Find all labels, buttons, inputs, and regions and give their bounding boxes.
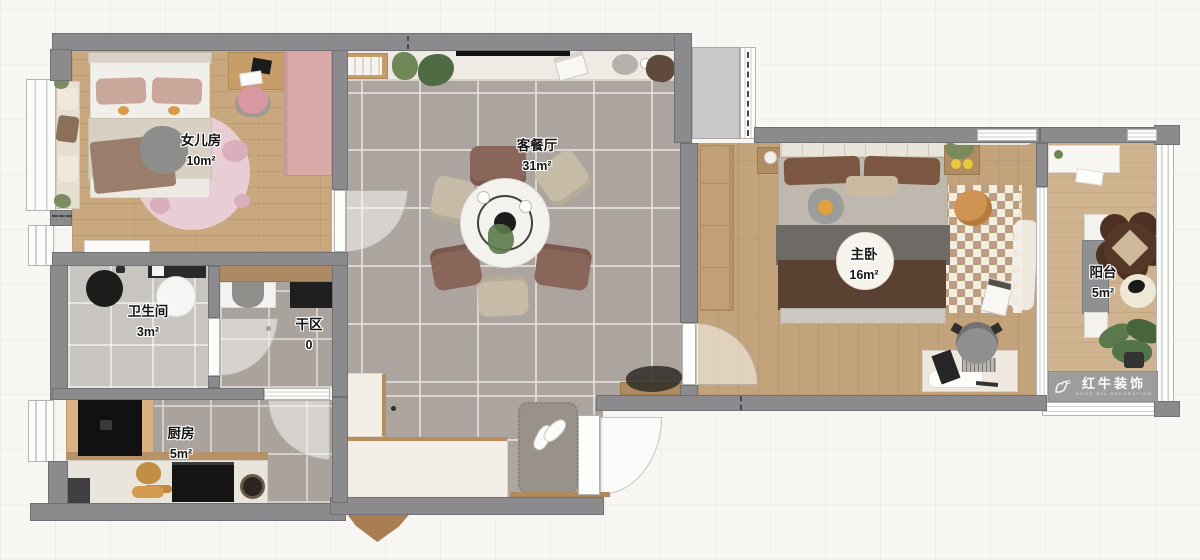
window-balcony-north	[1127, 129, 1157, 141]
master-bed-headboard	[780, 141, 946, 157]
label-daughter-room: 女儿房 10m²	[181, 131, 222, 171]
daughter-bed-pillow-left	[96, 77, 147, 105]
bathroom-area: 3m²	[128, 323, 169, 342]
daughter-rug-spot-3	[234, 194, 250, 208]
entry-cabinet-lower	[332, 437, 508, 500]
wall-south-kitchen	[30, 503, 346, 521]
kitchen-fridge-handle	[100, 420, 112, 430]
wall-corner-northeast	[1154, 125, 1180, 145]
kitchen-stove	[172, 462, 234, 502]
daughter-rug-spot-2	[150, 196, 170, 214]
dry-area-area: 0	[296, 336, 323, 355]
entry-door-arc	[600, 417, 662, 495]
dining-chair-east	[533, 242, 592, 291]
brand-watermark: 红牛装饰 HONG NIU DECORATION	[1048, 371, 1158, 402]
wall-south-foyer	[330, 497, 604, 515]
master-lamp-left	[764, 151, 777, 164]
washing-machine-knob	[116, 266, 125, 273]
master-bedroom-area: 16m²	[849, 266, 878, 285]
dining-cup-2	[519, 200, 532, 213]
master-wardrobe	[700, 145, 734, 311]
daughter-wardrobe	[284, 50, 332, 176]
bathroom-name: 卫生间	[128, 302, 169, 323]
wall-removed-dash-2	[740, 396, 742, 410]
kitchen-area: 5m²	[168, 445, 195, 464]
master-curtain-cloth	[1010, 219, 1039, 310]
vanity-plate	[612, 54, 638, 75]
watermark-subtitle-text: HONG NIU DECORATION	[1076, 391, 1152, 397]
dry-sink-basin	[232, 282, 264, 308]
utility-shaft	[692, 47, 740, 139]
living-dining-area: 31m²	[517, 157, 558, 176]
label-balcony: 阳台 5m²	[1090, 263, 1117, 303]
wall-kitchen-north-left	[52, 388, 264, 400]
wall-bath-north	[52, 252, 348, 266]
master-duck-2	[963, 159, 973, 169]
window-west-kitchen	[28, 400, 54, 462]
wall-west-bottom	[48, 461, 68, 507]
window-west-bath	[28, 225, 54, 266]
wall-corner-southeast	[1154, 401, 1180, 417]
wall-removed-dash-4	[407, 36, 409, 49]
dry-counter-wood	[218, 264, 336, 282]
toilet-paper	[152, 266, 164, 276]
foyer-speck-1	[391, 406, 396, 411]
balcony-name: 阳台	[1090, 263, 1117, 284]
wall-master-west	[680, 143, 698, 323]
label-kitchen: 厨房 5m²	[168, 424, 195, 464]
wall-west-mid1	[50, 210, 72, 226]
window-master-north	[977, 129, 1037, 141]
dining-cup-1	[477, 191, 490, 204]
kitchen-bread	[132, 486, 164, 498]
daughter-bed-pillow-right	[152, 77, 203, 105]
living-dining-name: 客餐厅	[517, 136, 558, 157]
daughter-bed-toy-left	[118, 106, 129, 115]
wall-removed-dash-3	[52, 215, 72, 217]
kitchen-door-opening	[264, 388, 330, 400]
balcony-cabinet-plant	[1054, 150, 1063, 159]
bench-pillow-bottom	[58, 156, 78, 182]
label-master-bedroom: 主卧 16m²	[849, 245, 878, 285]
label-living-dining: 客餐厅 31m²	[517, 136, 558, 176]
wall-south-long	[596, 395, 1047, 411]
balcony-plant-pot	[1124, 352, 1144, 368]
window-master-balcony	[1036, 187, 1048, 403]
kitchen-name: 厨房	[168, 424, 195, 445]
bathroom-door	[208, 318, 220, 376]
sideboard-plant-small	[392, 52, 418, 80]
dry-vanity-black	[290, 282, 334, 308]
kitchen-pot	[240, 474, 265, 499]
wall-west-top	[50, 49, 72, 81]
daughter-room-door	[334, 190, 346, 252]
wall-living-east-upper	[674, 33, 692, 143]
master-bedroom-door	[682, 323, 696, 385]
daughter-room-name: 女儿房	[181, 131, 222, 152]
wall-removed-dash-1	[747, 52, 749, 136]
kitchen-cutting-board	[136, 462, 161, 484]
bench-pillow-brown	[55, 115, 79, 144]
master-bedroom-name: 主卧	[849, 245, 878, 266]
bench-plant-bottom	[54, 194, 71, 208]
master-pillow-small	[846, 176, 898, 196]
label-bathroom: 卫生间 3m²	[128, 302, 169, 342]
master-bed-bench	[780, 308, 946, 324]
watermark-brand-text: 红牛装饰	[1082, 377, 1146, 391]
wall-bath-dry-stub	[208, 376, 220, 388]
daughter-rug-spot-1	[222, 140, 248, 162]
wall-kitchen-east	[332, 397, 348, 503]
wall-daughter-east	[332, 50, 348, 190]
balcony-area: 5m²	[1090, 284, 1117, 303]
sideboard-books	[348, 57, 382, 75]
dining-table-plant	[488, 224, 514, 254]
washing-machine	[86, 270, 123, 307]
wall-bath-dry-divider	[208, 266, 220, 318]
dining-chair-south	[477, 275, 529, 318]
wall-dry-east	[332, 252, 348, 397]
wall-west-mid2	[50, 265, 68, 400]
daughter-desk-chair	[238, 86, 268, 114]
master-pouf-orange	[954, 190, 992, 226]
bull-logo-icon	[1054, 379, 1071, 394]
wall-balcony-divider-stub	[1036, 143, 1048, 187]
wall-north-main	[52, 33, 692, 51]
label-dry-area: 干区 0	[296, 315, 323, 355]
entry-doormat	[518, 402, 578, 494]
dry-area-name: 干区	[296, 315, 323, 336]
kitchen-counter	[66, 460, 268, 505]
window-balcony-south	[1042, 402, 1166, 416]
daughter-bed-toy-right	[168, 106, 180, 115]
window-balcony-east	[1156, 143, 1174, 403]
entry-door	[578, 415, 600, 495]
floor-plan-canvas: 女儿房 10m² 客餐厅 31m² 卫生间 3m² 干区 0 厨房 5m² 主卧…	[0, 0, 1200, 560]
daughter-room-area: 10m²	[181, 152, 222, 171]
master-duck-1	[951, 159, 961, 169]
bench-pillow-top	[58, 88, 78, 110]
bay-window	[26, 79, 56, 211]
master-flower-center	[818, 200, 833, 215]
